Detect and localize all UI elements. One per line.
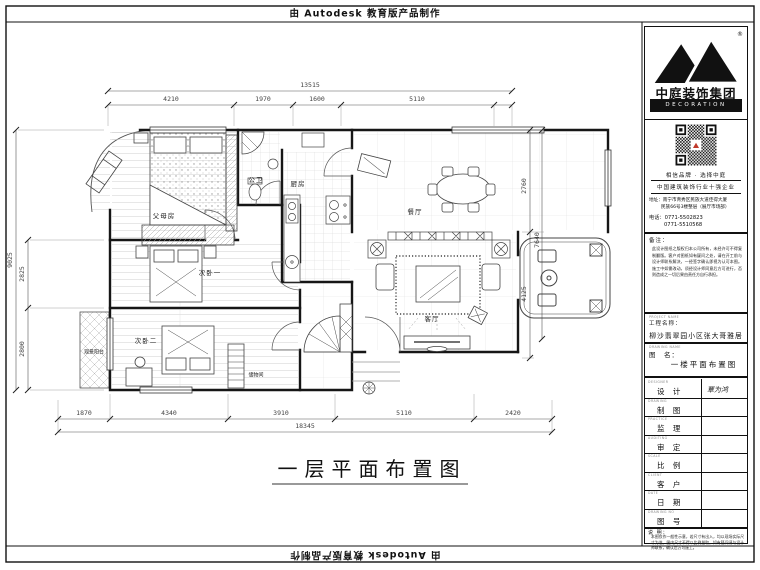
row-en-client: CLIENT: [648, 473, 662, 477]
room-label-bed2: 次卧一: [199, 270, 222, 277]
room-label-dining: 餐厅: [408, 209, 423, 216]
dim-bottom-5: 2420: [505, 410, 521, 417]
dim-bottom-2: 4340: [161, 410, 177, 417]
row-en-drawing-no: DRAWING NO: [648, 510, 674, 514]
dim-top-1: 4210: [163, 96, 179, 103]
dim-left-2: 2800: [19, 341, 26, 357]
note-text: 本图仅作一般性示意，若尺寸有出入，均以现场实际尺寸为准。图内尺寸不得以比例量取，…: [651, 534, 744, 551]
sheet-title: 一层平面布置图: [278, 459, 467, 479]
dim-left-total: 9025: [7, 252, 14, 268]
row-value-designer: 覃为鸿: [707, 385, 728, 395]
room-label-kitchen: 厨房: [291, 181, 306, 188]
dim-bottom-3: 3910: [273, 410, 289, 417]
dim-bottom-total: 18345: [295, 423, 315, 430]
remark-text: 此设计图纸之版权归本公司所有，未经许可不得复制翻版。客户对图纸如有疑问之处，请在…: [652, 246, 742, 279]
row-en-practice: PRACTICE: [648, 417, 667, 421]
row-en-date: DATE: [648, 491, 658, 495]
brand-subtitle: DECORATION GROUP: [650, 99, 742, 112]
row-en-scale: SCALE: [648, 454, 661, 458]
row-label-drawing: 制 图: [657, 405, 683, 416]
company-logo-icon: [653, 33, 741, 89]
row-en-designer: DESIGNER: [648, 380, 669, 384]
drawing-name-label: 图 名：: [649, 349, 679, 359]
row-en-drawing: DRAWING: [648, 399, 667, 403]
row-en-auditing: AUDITING: [648, 436, 668, 440]
dim-top-4: 5110: [409, 96, 425, 103]
dim-top-3: 1600: [309, 96, 325, 103]
dim-right-3: 4125: [521, 286, 528, 302]
phone-line-2: 0771-5510568: [664, 222, 702, 228]
dim-bottom-4: 5110: [396, 410, 412, 417]
title-block: ® 中庭装饰集团 DECORATION GROUP 相信品牌 · 选择中庭 中国…: [644, 26, 748, 544]
row-label-client: 客 户: [657, 479, 683, 490]
room-label-living: 客厅: [425, 316, 440, 323]
dim-top-2: 1970: [255, 96, 271, 103]
dim-left-1: 2825: [19, 266, 26, 282]
project-name-value: 柳沙翡翠园小区张大哥雅居: [645, 330, 747, 340]
row-label-drawing-no: 图 号: [657, 516, 683, 527]
row-label-designer: 设 计: [657, 386, 683, 397]
dim-right-1: 2760: [521, 178, 528, 194]
dim-bottom-1: 1870: [76, 410, 92, 417]
remark-label: 备注：: [649, 236, 669, 244]
qr-code: [674, 123, 718, 167]
autodesk-banner-bottom: 由 Autodesk 教育版产品制作: [289, 549, 440, 559]
dim-top-total: 13515: [300, 82, 320, 89]
autodesk-banner-top: 由 Autodesk 教育版产品制作: [289, 9, 440, 19]
room-label-bed3: 次卧二: [135, 338, 158, 345]
row-label-date: 日 期: [657, 497, 683, 508]
address-line-2: 民族66号3楼整层（展厅市场部）: [661, 204, 730, 210]
dim-right-2: 7640: [534, 232, 541, 248]
entry-porch: [352, 362, 400, 394]
row-label-scale: 比 例: [657, 460, 683, 471]
right-balcony: [520, 238, 610, 318]
room-label-bath: 公卫: [249, 177, 264, 184]
registered-mark: ®: [737, 31, 743, 38]
phone-line-1: 电话：0771-5502823: [649, 214, 703, 221]
address-line-1: 地址：南宁市青秀区民族大道佳得大厦: [649, 197, 727, 203]
room-label-view-balcony: 观景阳台: [84, 351, 104, 356]
project-name-en: PROJECT NAME: [649, 315, 679, 319]
project-name-label: 工程名称：: [649, 319, 682, 327]
room-label-parents: 父母房: [153, 213, 176, 220]
drawing-name-value: 一楼平面布置图: [653, 359, 755, 370]
row-label-practice: 监 理: [657, 423, 683, 434]
row-label-auditing: 审 定: [657, 442, 683, 453]
drawing-name-en: DRAWING NAME: [649, 345, 681, 349]
slogan-1: 相信品牌 · 选择中庭: [645, 171, 747, 179]
room-label-storage: 储物间: [248, 374, 263, 379]
drawing-sheet: 由 Autodesk 教育版产品制作 由 Autodesk 教育版产品制作 一层…: [0, 0, 760, 570]
slogan-2: 中国建筑装饰行业十强企业: [645, 183, 747, 191]
